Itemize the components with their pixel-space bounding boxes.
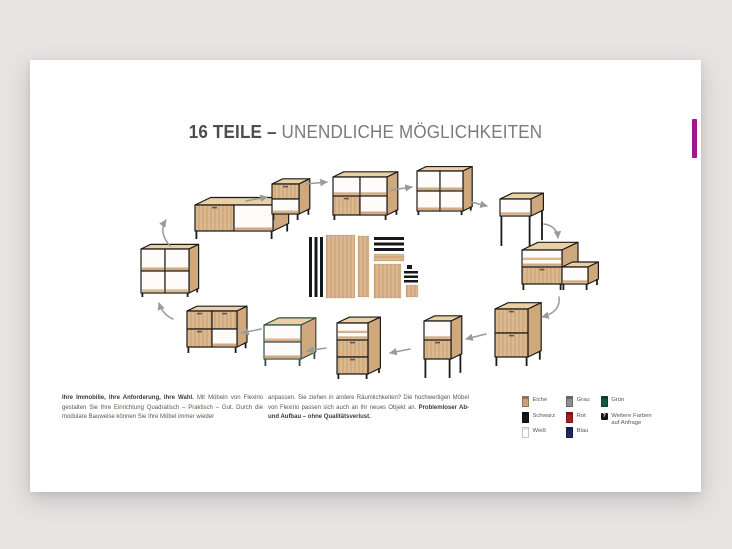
legend-item: Eiche [522,396,555,407]
legend-item: ?Weitere Farben auf Anfrage [601,412,658,428]
furniture-cabinet-drawers-tall [337,317,380,379]
furniture-side-table [500,193,543,246]
color-swatch-grau [566,396,573,407]
legend-item: Blau [566,427,590,438]
legend-label: Eiche [533,397,548,404]
furniture-shelf-wide [333,172,398,220]
part-wood-panel [326,235,355,298]
part-black-strip [374,243,404,246]
color-swatch-rot [566,412,573,423]
legend-label: Schwarz [533,413,556,420]
furniture-cabinet-flap [272,179,310,220]
legend-item: Grau [566,396,590,407]
flow-arrow-icon [544,224,558,238]
color-swatch-blau [566,427,573,438]
paragraph-right: anpassen. Sie ziehen in andere Räumlichk… [268,394,469,423]
parts-kit-center [309,235,418,298]
part-black-strip [407,265,412,269]
part-black-strip [374,248,404,251]
part-wood-panel [374,264,401,298]
legend-column: Grün?Weitere Farben auf Anfrage [601,396,658,438]
legend-item: Weiß [522,427,555,438]
part-wood-panel [406,285,418,297]
flow-arrow-icon [471,202,487,206]
legend-label: Blau [577,428,589,435]
part-black-strip [404,271,418,274]
flow-arrow-icon [159,303,173,319]
part-black-strip [374,237,404,240]
color-legend: EicheSchwarzWeißGrauRotBlauGrün?Weitere … [522,396,657,438]
legend-item: Grün [601,396,658,407]
furniture-shelf-green [264,318,316,366]
color-swatch-wei [522,427,529,438]
furniture-bookcase-left [141,244,199,297]
part-wood-panel [374,254,404,261]
furniture-sideboard-stepped [522,242,598,290]
part-black-strip [320,237,323,297]
part-black-strip [315,237,318,297]
color-swatch-grn [601,396,608,407]
flow-arrow-icon [466,334,486,339]
legend-label: Grau [577,397,590,404]
legend-label: Weitere Farben auf Anfrage [611,413,657,428]
flow-arrow-icon [163,220,170,246]
page-background: { "page": {"background": "#e5e4e3"}, "ca… [0,0,732,549]
part-wood-panel [358,236,369,297]
furniture-sideboard-closed [187,306,247,353]
color-swatch-schwarz [522,412,529,423]
part-black-strip [309,237,312,297]
color-swatch-eiche [522,396,529,407]
flow-arrow-icon [542,297,559,317]
legend-item: Schwarz [522,412,555,423]
furniture-cabinet-two-flaps [495,303,541,366]
legend-column: EicheSchwarzWeiß [522,396,555,438]
paragraph-left-lead: Ihre Immobilie, Ihre Anforderung, Ihre W… [62,395,194,401]
flow-arrow-icon [390,349,410,353]
legend-item: Rot [566,412,590,423]
legend-label: Rot [577,413,586,420]
part-black-strip [404,280,418,283]
accent-tab [692,119,697,158]
legend-label: Grün [611,397,624,404]
furniture-bookcase-right [417,167,472,215]
legend-label: Weiß [533,428,547,435]
legend-column: GrauRotBlau [566,396,590,438]
furniture-cabinet-secretary [424,316,462,378]
question-icon: ? [601,413,608,420]
part-black-strip [404,276,418,279]
paragraph-left: Ihre Immobilie, Ihre Anforderung, Ihre W… [62,394,263,423]
slide-card: 16 TEILE – UNENDLICHE MÖGLICHKEITEN Ihre… [30,60,701,492]
